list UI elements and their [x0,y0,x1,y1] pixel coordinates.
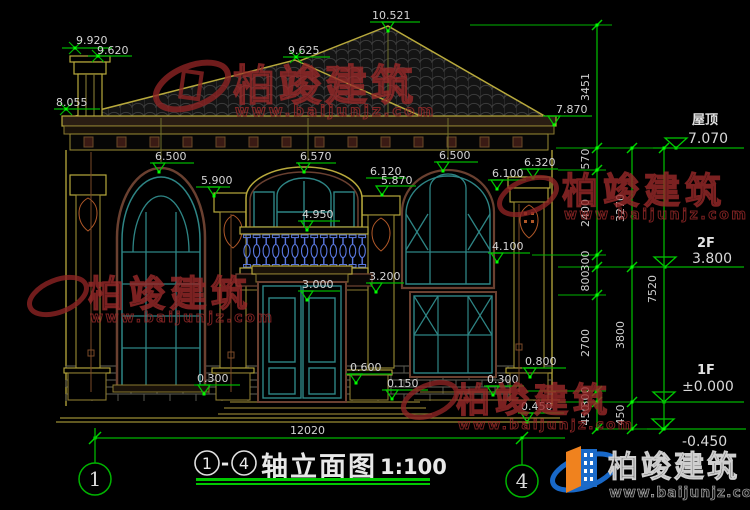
title-axis-4: 4 [239,454,249,473]
vdim-2700: 2700 [579,329,592,357]
dim-rwin-top: 6.500 [439,149,471,162]
door-cornice [252,266,352,274]
brand-url: www.baijunjz.com [609,485,750,501]
right-1f-window [410,292,496,377]
dim-step: 0.150 [387,377,419,390]
window-sill [113,385,209,392]
dim-balcony-slab: 3.200 [369,270,401,283]
dim-balcony-rail: 4.950 [302,208,334,221]
title-axis-1: 1 [202,454,212,473]
title-underline-2 [196,483,430,485]
eave-band [62,116,556,150]
dim-p2-top: 5.900 [201,174,233,187]
cad-elevation-drawing: 9.920 9.620 10.521 9.625 8.055 7.870 6.5… [0,0,750,510]
watermark-url: www.baijunjz.com [90,310,275,326]
balusters [244,235,366,267]
axis-number-1: 1 [89,467,102,491]
dim-cwin-top: 6.570 [300,150,332,163]
vdim-3800: 3800 [614,321,627,349]
dim-eave-right: 7.870 [556,103,588,116]
logo-building-icon [566,446,581,493]
vdim-570: 570 [579,149,592,170]
level-1f-label: 1F [697,363,715,378]
dim-eave-left: 8.055 [56,96,88,109]
watermark-url: www.baijunjz.com [235,102,436,120]
dim-ridge-left: 9.625 [288,44,320,57]
level-1f-value: ±0.000 [682,379,734,395]
vdim-800: 800 [579,271,592,292]
watermark-brand: 柏竣建筑 [456,381,612,421]
vdim-7520: 7520 [646,275,659,303]
vdim-3451: 3451 [579,73,592,101]
watermark-brand: 柏竣建筑 [88,274,252,315]
drawing-canvas: 9.920 9.620 10.521 9.625 8.055 7.870 6.5… [0,0,750,510]
dim-p4-cap: 6.100 [492,167,524,180]
dim-lwin-sill: 0.300 [197,372,229,385]
watermark-bottom: 柏竣建筑 www.baijunjz.com [398,376,634,433]
drawing-scale: 1:100 [380,455,447,479]
dim-lwin-top: 6.500 [155,150,187,163]
title-dash: - [221,451,229,475]
dim-total-width: 12020 [290,424,325,437]
dim-door-top: 3.000 [302,278,334,291]
dim-ridge-main: 10.521 [372,9,411,22]
dim-p3-cap: 5.870 [381,174,413,187]
title-underline [196,478,430,481]
watermark-url: www.baijunjz.com [458,417,634,433]
vertical-dimension-labels: 3451 570 2400 300 800 2700 300 450 3270 … [579,73,659,426]
pilaster-left-corner [70,175,106,368]
dim-porch: 0.600 [350,361,382,374]
brand-logo: 柏竣建筑 www.baijunjz.com [548,446,750,501]
watermark-url: www.baijunjz.com [564,207,749,223]
dim-rwin-sill: 4.100 [492,240,524,253]
level-2f-value: 3.800 [692,251,732,267]
brand-name: 柏竣建筑 [608,450,740,485]
dim-rporch: 0.800 [525,355,557,368]
axis-number-4: 4 [516,469,529,493]
watermark-left: 柏竣建筑 www.baijunjz.com [24,270,274,326]
balcony-rail [240,227,368,234]
dim-chimney-cap: 9.620 [97,44,129,57]
level-roof-label: 屋顶 [692,113,718,128]
right-arched-window [402,170,494,288]
vdim-300a: 300 [579,251,592,272]
dim-p4-top: 6.320 [524,156,556,169]
level-labels: 屋顶 7.070 2F 3.800 1F ±0.000 -0.450 [682,113,734,450]
level-roof-value: 7.070 [688,131,728,147]
logo-tower-icon [581,449,597,487]
level-below-value: -0.450 [682,434,727,450]
level-2f-label: 2F [697,236,715,251]
watermark-brand: 柏竣建筑 [562,171,726,212]
